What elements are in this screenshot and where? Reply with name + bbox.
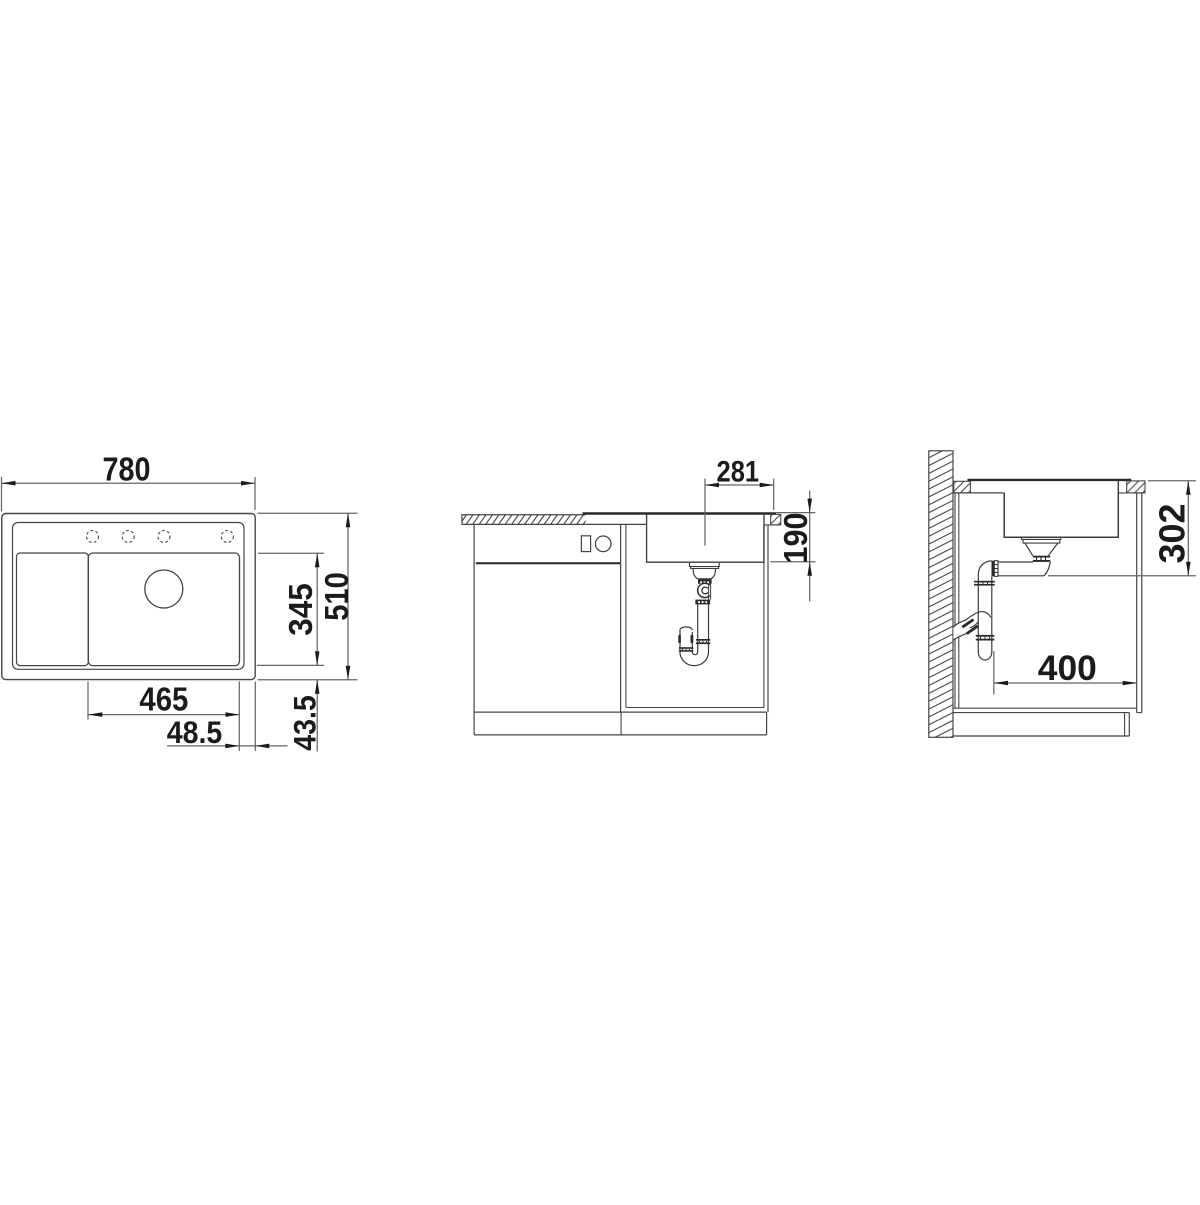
svg-text:190: 190 xyxy=(777,513,814,564)
svg-text:510: 510 xyxy=(318,572,355,621)
svg-text:48.5: 48.5 xyxy=(167,714,223,750)
svg-text:780: 780 xyxy=(103,451,151,488)
svg-text:400: 400 xyxy=(1038,649,1097,688)
svg-text:345: 345 xyxy=(282,583,319,636)
svg-text:302: 302 xyxy=(1151,504,1192,564)
svg-text:281: 281 xyxy=(717,456,760,489)
svg-text:465: 465 xyxy=(139,681,188,718)
svg-text:43.5: 43.5 xyxy=(287,695,323,751)
